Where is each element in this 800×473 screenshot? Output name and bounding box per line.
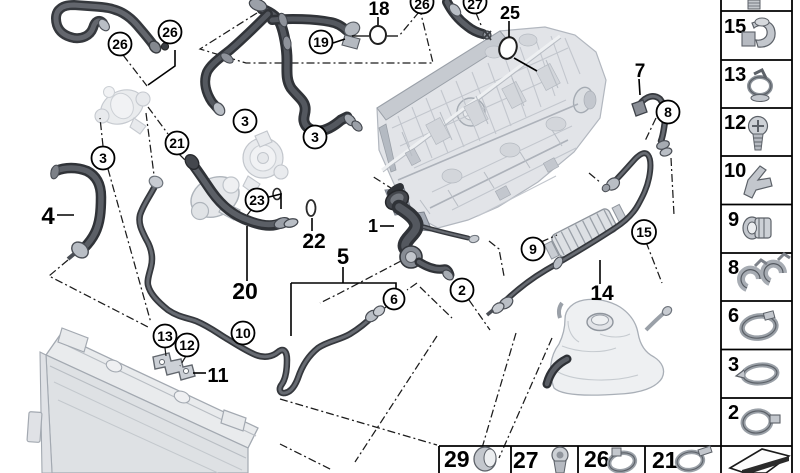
svg-text:27: 27 (467, 0, 483, 12)
svg-text:5: 5 (337, 244, 349, 269)
svg-text:4: 4 (41, 203, 55, 230)
svg-text:10: 10 (235, 325, 251, 341)
svg-text:3: 3 (311, 129, 319, 145)
svg-text:27: 27 (513, 447, 539, 473)
svg-text:21: 21 (652, 447, 678, 473)
svg-text:8: 8 (664, 104, 672, 120)
svg-text:2: 2 (458, 282, 466, 298)
svg-text:13: 13 (157, 328, 173, 344)
svg-text:14: 14 (590, 282, 614, 305)
svg-text:23: 23 (249, 192, 265, 208)
svg-text:6: 6 (728, 305, 739, 327)
svg-text:6: 6 (390, 291, 398, 307)
svg-text:26: 26 (112, 36, 128, 52)
svg-text:22: 22 (302, 230, 325, 253)
svg-text:9: 9 (728, 209, 739, 231)
svg-text:7: 7 (635, 61, 646, 82)
svg-text:10: 10 (724, 160, 746, 182)
svg-text:3: 3 (241, 113, 249, 129)
svg-text:3: 3 (99, 150, 107, 166)
svg-text:26: 26 (414, 0, 430, 12)
svg-text:29: 29 (444, 446, 470, 472)
svg-text:12: 12 (724, 112, 746, 134)
svg-text:18: 18 (368, 0, 389, 20)
svg-text:26: 26 (584, 446, 610, 472)
svg-text:19: 19 (313, 34, 329, 50)
svg-text:12: 12 (179, 337, 195, 353)
svg-text:9: 9 (529, 241, 537, 257)
svg-text:15: 15 (636, 224, 652, 240)
svg-text:3: 3 (728, 354, 739, 376)
svg-text:20: 20 (232, 278, 258, 304)
svg-text:1: 1 (368, 216, 378, 236)
svg-text:21: 21 (169, 135, 185, 151)
svg-text:26: 26 (162, 24, 178, 40)
svg-text:2: 2 (728, 402, 739, 424)
svg-text:13: 13 (724, 64, 746, 86)
svg-text:11: 11 (207, 365, 228, 387)
svg-text:25: 25 (500, 3, 520, 23)
